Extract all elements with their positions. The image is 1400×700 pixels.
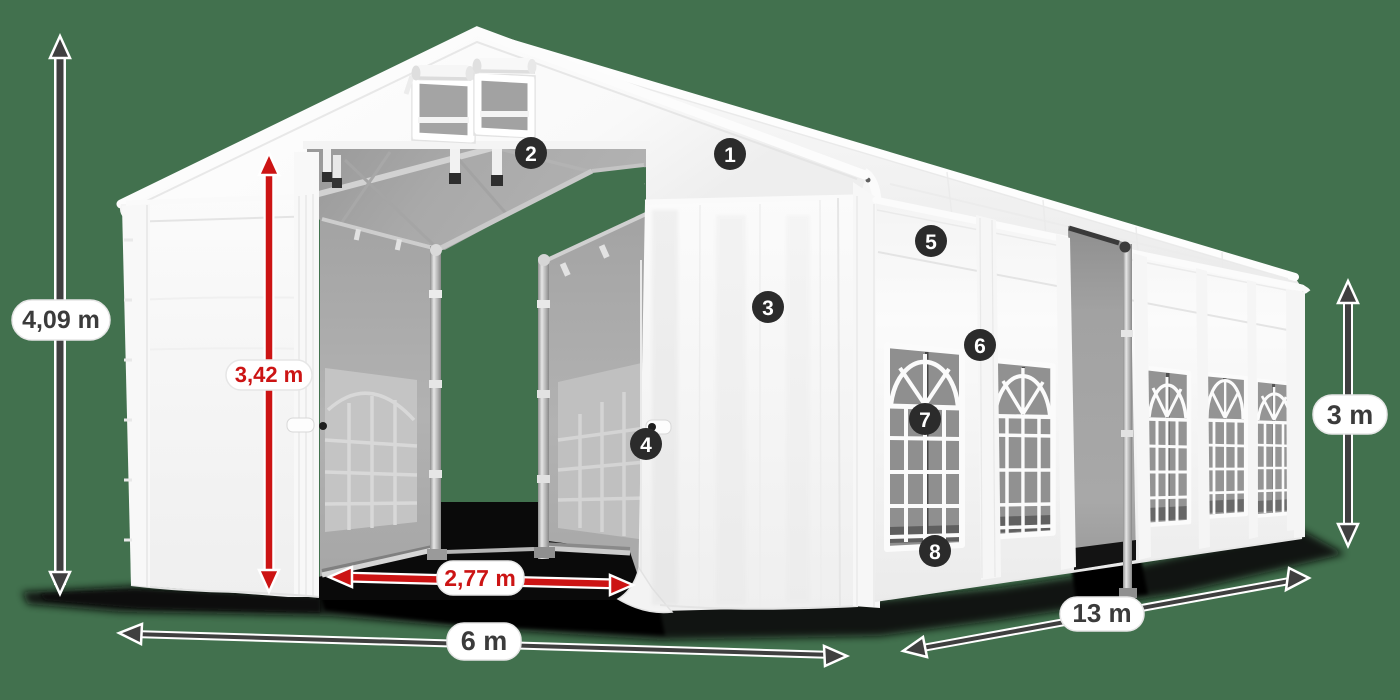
svg-text:7: 7 bbox=[919, 409, 931, 432]
svg-text:6: 6 bbox=[974, 335, 986, 358]
svg-text:5: 5 bbox=[925, 231, 937, 254]
svg-text:3: 3 bbox=[762, 297, 774, 320]
svg-text:13 m: 13 m bbox=[1072, 598, 1131, 628]
svg-text:3 m: 3 m bbox=[1327, 400, 1374, 430]
svg-text:4,09 m: 4,09 m bbox=[22, 306, 100, 334]
svg-text:1: 1 bbox=[724, 144, 736, 167]
svg-text:3,42 m: 3,42 m bbox=[235, 362, 304, 387]
svg-text:4: 4 bbox=[640, 434, 652, 457]
svg-text:6 m: 6 m bbox=[461, 626, 508, 656]
svg-text:2,77 m: 2,77 m bbox=[444, 565, 516, 591]
svg-text:8: 8 bbox=[929, 541, 941, 564]
svg-text:2: 2 bbox=[525, 143, 537, 166]
